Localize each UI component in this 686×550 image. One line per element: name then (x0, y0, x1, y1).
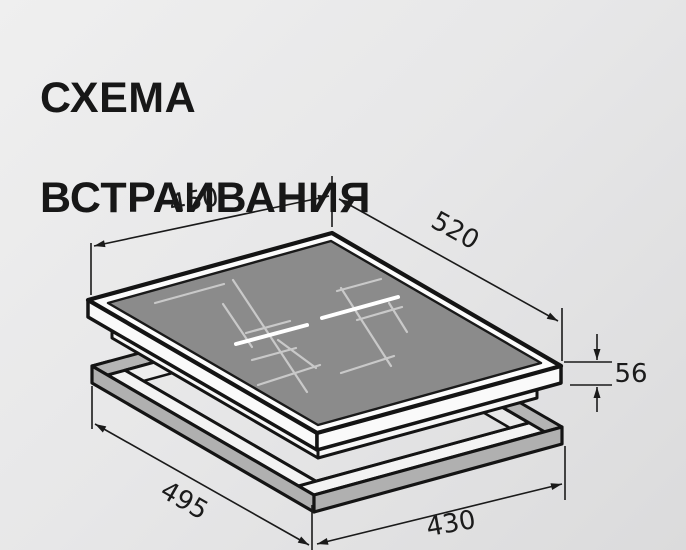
page-title-line1: СХЕМА (40, 74, 371, 124)
dimension-label-height: 56 (614, 359, 647, 389)
dimension-56 (564, 334, 612, 412)
installation-scheme-page: СХЕМА ВСТРАИВАНИЯ 450 520 56 495 430 (0, 0, 686, 550)
page-title: СХЕМА ВСТРАИВАНИЯ (40, 24, 371, 273)
